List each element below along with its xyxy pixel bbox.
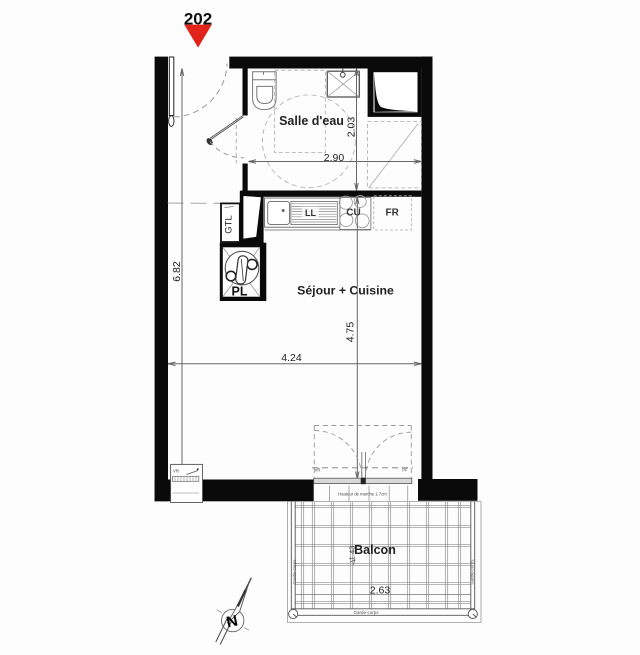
svg-text:4.24: 4.24 — [281, 352, 302, 364]
svg-text:Hauteur de marche 1 7cm: Hauteur de marche 1 7cm — [338, 491, 387, 496]
svg-text:GTL: GTL — [224, 215, 235, 233]
svg-text:VR: VR — [315, 467, 321, 472]
svg-text:VR: VR — [173, 468, 179, 473]
svg-text:4.75: 4.75 — [345, 322, 357, 343]
svg-text:2.63: 2.63 — [370, 584, 391, 596]
svg-text:1.43: 1.43 — [347, 546, 356, 561]
svg-text:PF: PF — [402, 467, 408, 472]
svg-text:2.03: 2.03 — [346, 117, 358, 138]
svg-text:Séjour + Cuisine: Séjour + Cuisine — [297, 284, 394, 298]
svg-text:LL: LL — [305, 208, 316, 218]
svg-text:Garde-corps: Garde-corps — [292, 559, 297, 585]
svg-text:CU: CU — [346, 207, 360, 218]
svg-text:Salle d'eau: Salle d'eau — [279, 114, 344, 128]
svg-text:Balcon: Balcon — [354, 543, 396, 557]
svg-text:Garde-corps: Garde-corps — [353, 610, 379, 615]
svg-text:2.90: 2.90 — [324, 152, 345, 164]
svg-text:PL: PL — [232, 285, 248, 299]
svg-text:Garde-corps: Garde-corps — [470, 559, 475, 585]
svg-text:FR: FR — [386, 208, 400, 219]
svg-text:6.82: 6.82 — [171, 261, 183, 282]
svg-text:202: 202 — [184, 9, 212, 28]
